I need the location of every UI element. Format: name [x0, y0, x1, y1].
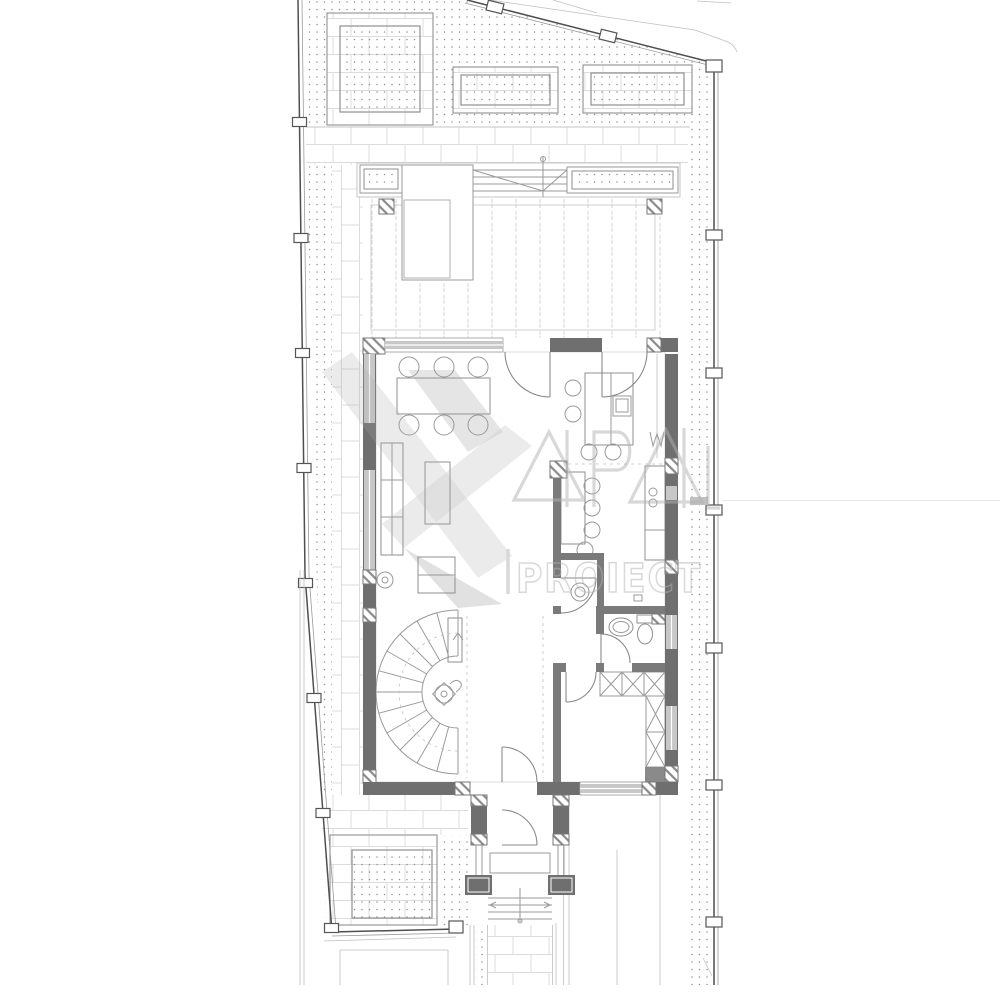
terrace-structure — [402, 165, 473, 280]
driveway — [563, 795, 688, 985]
kitchen-island — [585, 373, 633, 445]
terrace-planter — [567, 167, 678, 193]
armchair — [448, 618, 462, 662]
doormat — [490, 853, 550, 873]
floor-plan-canvas: PROIECT — [0, 0, 1000, 1000]
toilet-tank — [637, 615, 653, 623]
site-plan-drawing: PROIECT — [0, 0, 1000, 1000]
breakfast-table — [561, 472, 585, 544]
wardrobe-solid-block — [645, 767, 665, 783]
planting-bed — [453, 67, 558, 113]
planting-bed — [327, 13, 433, 125]
terrace-planter — [360, 165, 402, 193]
kitchen-counter — [645, 466, 665, 560]
entrance-steps — [486, 888, 554, 925]
terrace-column — [379, 199, 394, 214]
entrance-door-outer — [502, 810, 537, 845]
rear-terrace — [357, 157, 680, 339]
planting-bed — [330, 835, 437, 925]
watermark-brand-text: PROIECT — [516, 556, 702, 602]
front-walkway — [488, 923, 552, 985]
terrace-column — [647, 199, 662, 214]
planting-bed — [583, 65, 692, 113]
window — [666, 486, 677, 500]
toilet-bowl — [638, 624, 653, 644]
